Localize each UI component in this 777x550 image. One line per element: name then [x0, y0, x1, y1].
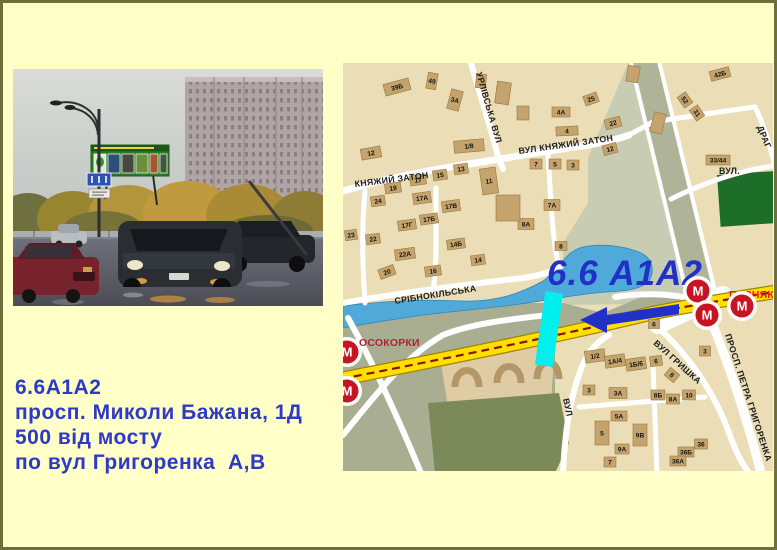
map-building: 36	[695, 439, 708, 449]
position-line: 500 від мосту	[15, 425, 340, 450]
svg-text:М: М	[702, 308, 713, 323]
location-card-page: 39Б493А1/812151317192417А17В117534А42522…	[0, 0, 777, 550]
building-number: 36	[697, 441, 705, 448]
green-field	[428, 393, 569, 471]
map-building: 8Б	[651, 390, 665, 400]
building-number: 8А	[669, 396, 678, 403]
building-number: 7	[608, 459, 612, 466]
map-building: 1/2	[584, 349, 605, 364]
small-white-sign	[89, 189, 110, 198]
location-photo	[13, 69, 323, 306]
metro-icon: М	[727, 291, 757, 321]
map-building: 15	[432, 169, 447, 181]
building-number: 36А	[672, 458, 684, 465]
building-number: 4А	[557, 109, 566, 116]
building-number: 23	[347, 232, 356, 240]
map-building: 10	[683, 390, 696, 400]
building-number: 15	[436, 172, 445, 180]
building-number: 3	[703, 348, 707, 355]
map-building: 11	[479, 167, 498, 195]
map-building: 9В	[633, 424, 647, 446]
map-building: 17А	[412, 191, 431, 204]
map-building: 36Б	[678, 447, 694, 457]
building-number: 6	[652, 321, 656, 328]
map-canvas: 39Б493А1/812151317192417А17В117534А42522…	[343, 63, 773, 471]
map-building: 17В	[441, 199, 460, 212]
building-number: 14	[474, 257, 483, 265]
building-number: 33/44	[710, 157, 727, 164]
map-building: 8А	[667, 394, 680, 404]
map-building: 5	[549, 159, 561, 169]
map-building: 9А	[615, 444, 629, 454]
building-number: 3	[587, 387, 591, 394]
map-building: 1/8	[454, 139, 485, 154]
building-number: 8	[559, 243, 563, 250]
dark-minivan	[118, 221, 242, 287]
building-number: 5	[600, 430, 604, 437]
building-number: 16	[429, 268, 438, 276]
map-building: 5А	[611, 411, 627, 421]
building-number: 8Б	[654, 392, 663, 399]
svg-text:М: М	[737, 299, 748, 314]
address-line: просп. Миколи Бажана, 1Д	[15, 400, 340, 425]
building-number: 7	[534, 161, 538, 168]
building-number: 5	[553, 161, 557, 168]
lane-direction-sign	[87, 173, 111, 186]
building-number: 13	[457, 166, 466, 174]
building-number: 9В	[636, 432, 645, 439]
building-number: 3	[571, 162, 575, 169]
map-building: 14Б	[446, 238, 465, 250]
map-building: 3	[567, 160, 579, 170]
map-building: 7А	[544, 200, 560, 211]
street-label: ВУЛ.	[719, 166, 740, 176]
map-building: 8А	[518, 219, 534, 230]
map-building: 4А	[552, 107, 570, 117]
map-building	[517, 106, 529, 120]
map-building	[495, 81, 512, 105]
building-number: 24	[374, 198, 383, 206]
building-number: 8А	[522, 221, 531, 228]
map-building: 22	[365, 233, 380, 245]
map-building: 24	[370, 195, 385, 207]
map-building: 17Б	[419, 213, 438, 225]
map-building: 17Г	[397, 219, 416, 231]
map-building: 22А	[394, 247, 415, 261]
map-building: 8	[555, 242, 567, 251]
map-building: 33/44	[706, 155, 730, 165]
svg-text:М: М	[343, 384, 352, 399]
map-building: 1Б/6	[625, 357, 646, 372]
building-number: 7А	[548, 202, 557, 209]
building-number: 3А	[614, 390, 623, 397]
building-number: 19	[389, 185, 398, 193]
map-building: 1А/4	[604, 354, 625, 369]
photo-scene	[13, 69, 323, 306]
building-number: 4	[565, 128, 569, 135]
map-building: 36А	[670, 456, 686, 466]
board-code: 6.6А1А2	[15, 375, 340, 400]
info-block: 6.6А1А2 просп. Миколи Бажана, 1Д 500 від…	[15, 375, 340, 475]
map-building: 7	[604, 457, 616, 467]
metro-icon: М	[692, 300, 722, 330]
location-map: 39Б493А1/812151317192417А17В117534А42522…	[343, 63, 773, 471]
map-building: 3А	[609, 388, 627, 399]
map-building: 5	[595, 421, 609, 445]
building-number: 9А	[618, 446, 627, 453]
map-building: 4	[556, 126, 578, 136]
map-building: 6	[649, 320, 660, 329]
building-number: 22	[369, 236, 378, 244]
building-number: 10	[685, 392, 693, 399]
map-building: 6	[649, 355, 662, 367]
svg-text:М: М	[343, 345, 352, 360]
board-code-label: 6.6 А1А2	[547, 254, 703, 293]
metro-station-label: ОСОКОРКИ	[359, 337, 420, 349]
map-building	[496, 195, 520, 221]
map-building: 13	[453, 163, 468, 175]
map-building: 7	[530, 159, 542, 169]
building-number: 1/8	[464, 143, 474, 151]
map-building: 14	[470, 254, 485, 266]
svg-text:М: М	[693, 284, 704, 299]
building-number: 36Б	[680, 449, 692, 456]
map-building	[626, 65, 641, 83]
building-number: 1/2	[590, 353, 600, 361]
building-number: 5А	[615, 413, 624, 420]
map-building: 23	[344, 229, 357, 241]
map-building: 3	[700, 346, 711, 356]
map-building: 16	[424, 265, 441, 277]
direction-line: по вул Григоренка А,В	[15, 450, 340, 475]
building-number: 11	[485, 178, 493, 186]
map-building: 3	[583, 385, 595, 395]
